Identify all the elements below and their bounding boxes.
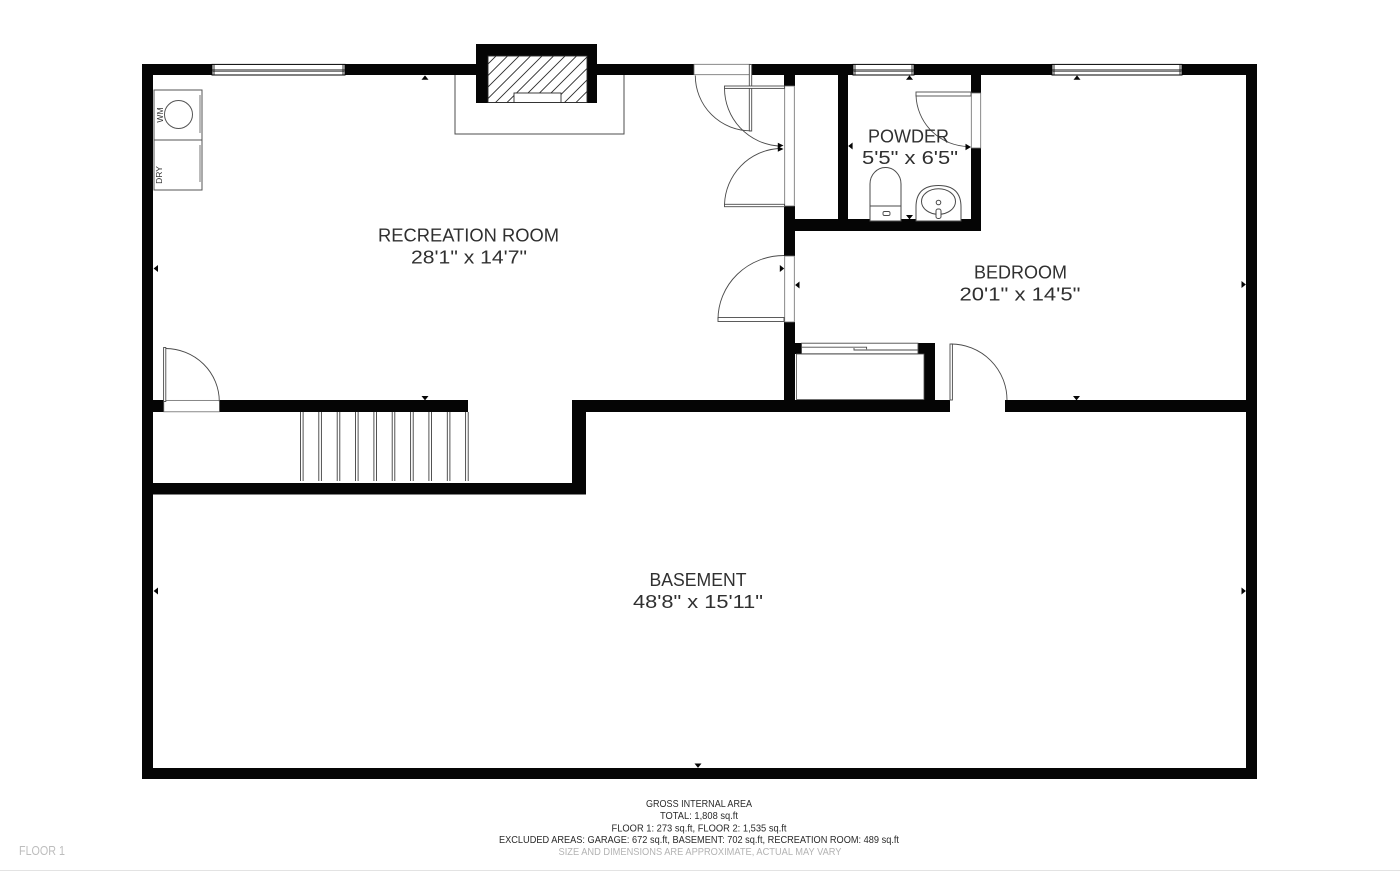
svg-text:48'8" x 15'11": 48'8" x 15'11" [633, 591, 763, 612]
svg-text:FLOOR 1: FLOOR 1 [19, 844, 65, 858]
svg-text:BASEMENT: BASEMENT [650, 569, 747, 590]
svg-text:28'1" x 14'7": 28'1" x 14'7" [411, 247, 527, 268]
svg-text:RECREATION ROOM: RECREATION ROOM [378, 225, 559, 246]
svg-text:BEDROOM: BEDROOM [974, 262, 1067, 283]
svg-text:SIZE AND DIMENSIONS ARE APPROX: SIZE AND DIMENSIONS ARE APPROXIMATE, ACT… [559, 846, 842, 858]
svg-text:5'5" x 6'5": 5'5" x 6'5" [862, 147, 958, 168]
svg-text:GROSS INTERNAL AREA: GROSS INTERNAL AREA [646, 798, 752, 810]
svg-text:TOTAL: 1,808 sq.ft: TOTAL: 1,808 sq.ft [660, 810, 738, 822]
svg-text:20'1" x 14'5": 20'1" x 14'5" [960, 284, 1081, 305]
svg-text:POWDER: POWDER [868, 127, 949, 147]
svg-text:DRY: DRY [154, 166, 164, 184]
svg-text:WM: WM [155, 107, 165, 122]
svg-text:EXCLUDED AREAS: GARAGE: 672 sq: EXCLUDED AREAS: GARAGE: 672 sq.ft, BASEM… [499, 834, 899, 846]
svg-text:FLOOR 1: 273 sq.ft, FLOOR 2: 1: FLOOR 1: 273 sq.ft, FLOOR 2: 1,535 sq.ft [612, 822, 787, 834]
